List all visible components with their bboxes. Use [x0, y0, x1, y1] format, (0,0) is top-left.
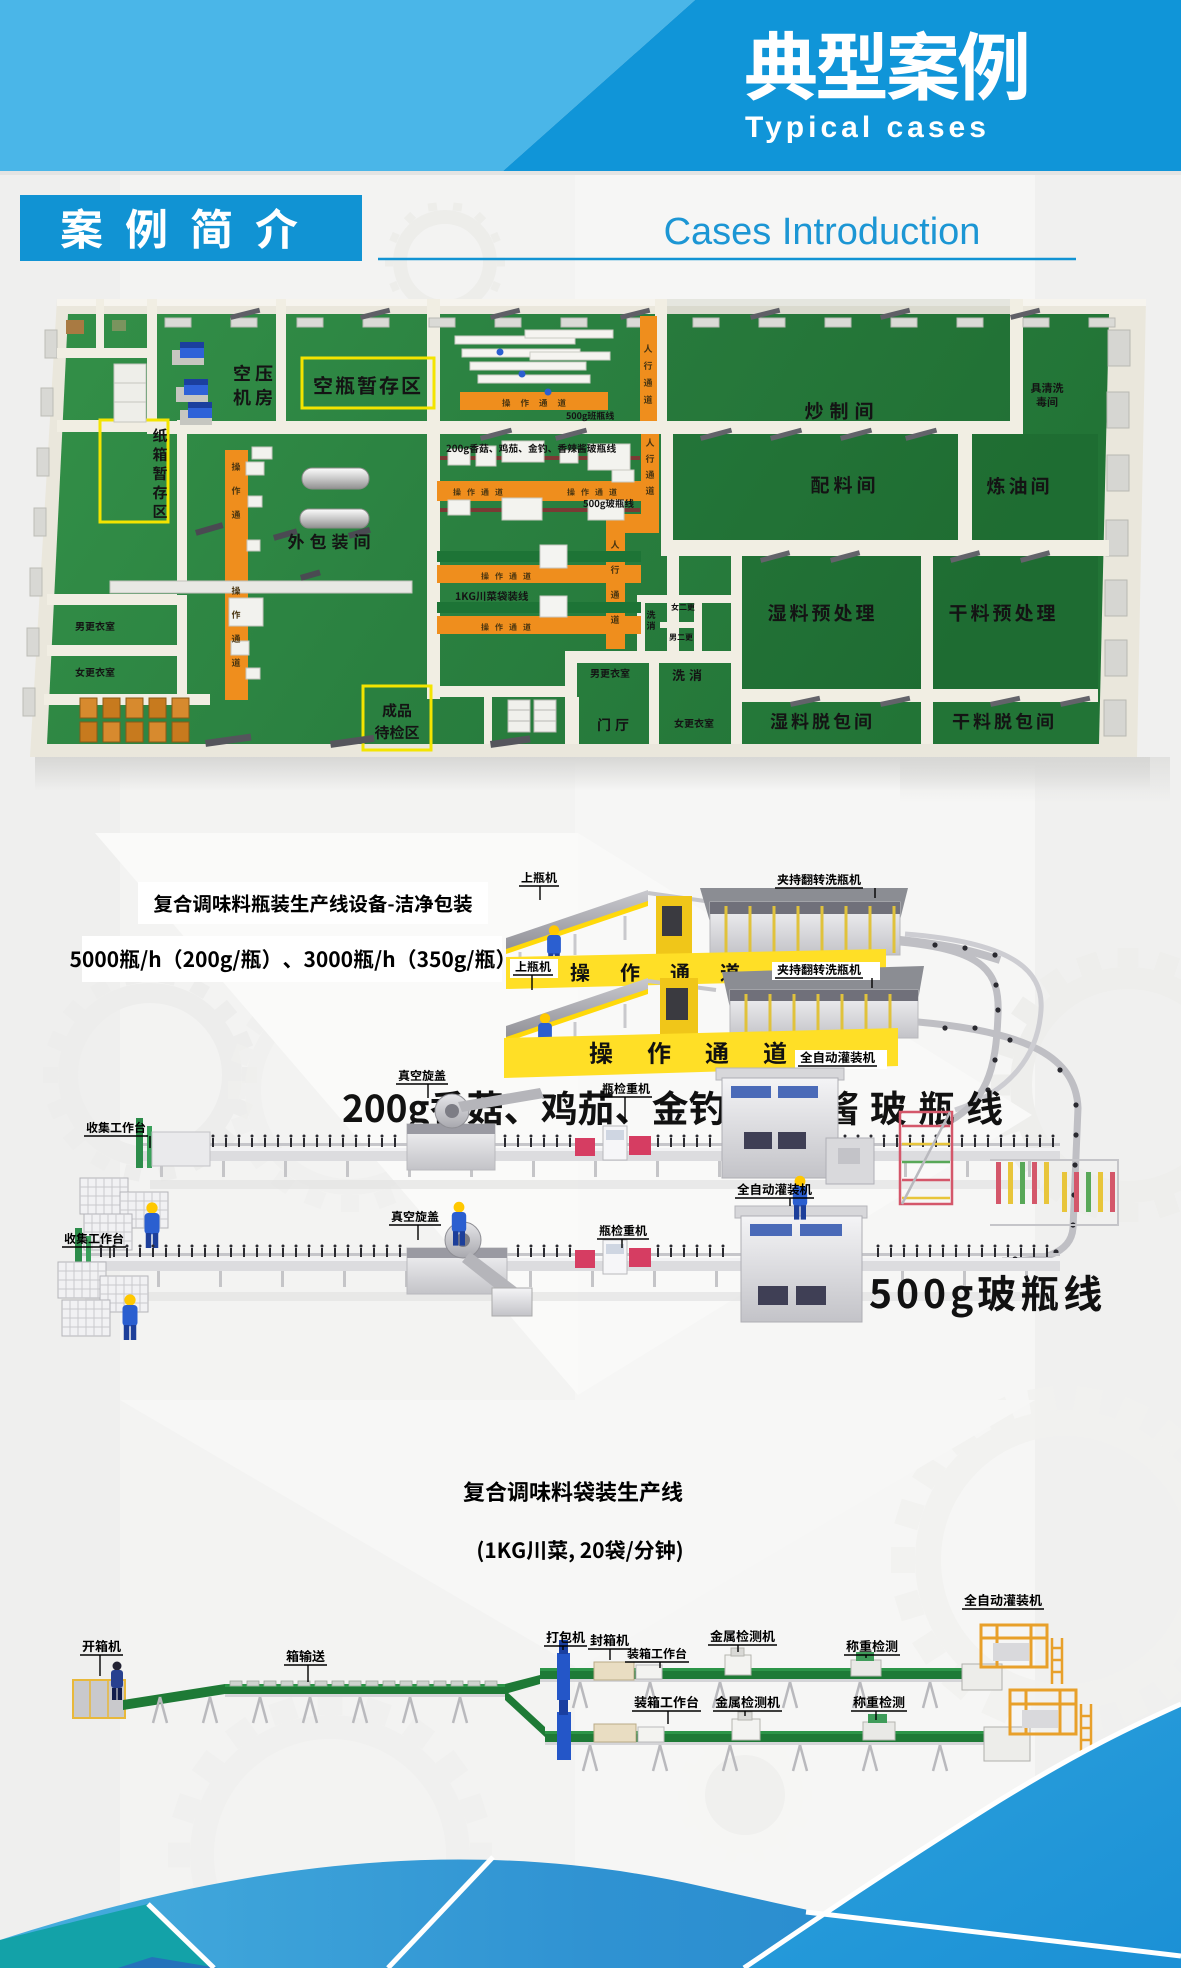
- svg-text:Typical cases: Typical cases: [745, 111, 990, 144]
- svg-text:Cases Introduction: Cases Introduction: [664, 211, 981, 253]
